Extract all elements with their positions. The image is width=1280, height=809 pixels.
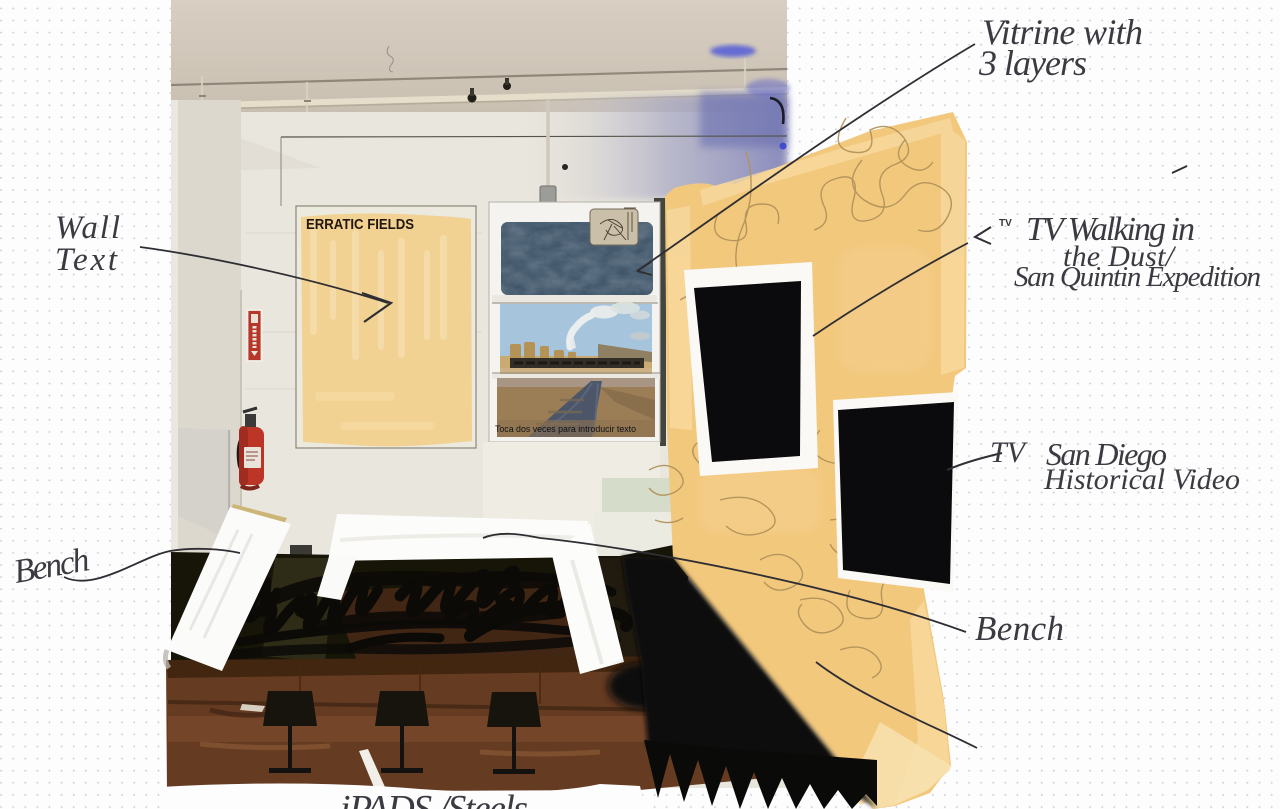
svg-text:iPADS /Steels: iPADS /Steels: [340, 788, 528, 809]
svg-text:Text: Text: [55, 242, 118, 278]
svg-text:Wall: Wall: [55, 210, 120, 246]
svg-text:Historical Video: Historical Video: [1043, 463, 1240, 496]
svg-text:San Quintin Expedition: San Quintin Expedition: [1014, 261, 1261, 293]
svg-text:TV: TV: [999, 218, 1012, 229]
svg-text:Bench: Bench: [975, 609, 1064, 648]
svg-text:Toca dos veces para introducir: Toca dos veces para introducir texto: [495, 424, 636, 434]
svg-text:3 layers: 3 layers: [978, 43, 1087, 83]
svg-text:ERRATIC FIELDS: ERRATIC FIELDS: [306, 217, 414, 233]
svg-text:TV: TV: [990, 436, 1029, 469]
